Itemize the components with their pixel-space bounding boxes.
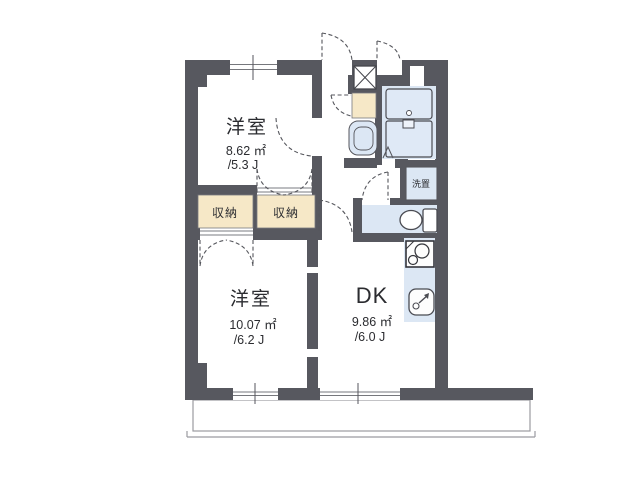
meter-door-arc <box>377 41 400 60</box>
shoe-cabinet <box>352 93 376 118</box>
room-area-bedroom-upper: 8.62 ㎡ <box>226 144 267 158</box>
laundry-label: 洗置 <box>412 178 430 189</box>
shoe-cabinet-door-arc <box>331 95 351 116</box>
window-top <box>230 55 277 80</box>
room-label-dk: DK <box>356 283 389 308</box>
bath-window-notch <box>410 66 424 86</box>
room-size-bedroom-lower: /6.2 J <box>234 333 265 347</box>
room-area-dk: 9.86 ㎡ <box>352 315 393 329</box>
bathtub-icon <box>383 89 432 158</box>
balcony <box>187 400 535 437</box>
closet-right-label: 収納 <box>273 206 299 220</box>
room-size-bedroom-upper: /5.3 J <box>228 158 259 172</box>
stove-icon <box>406 241 434 267</box>
toilet-door-arc <box>362 172 388 200</box>
closet-left-label: 収納 <box>212 206 238 220</box>
room-label-bedroom-lower: 洋室 <box>230 288 272 310</box>
sink-icon <box>409 289 434 315</box>
partition-seam <box>307 267 318 273</box>
closet-left-opening <box>200 228 253 240</box>
meter-box <box>354 66 376 89</box>
room-label-bedroom-upper: 洋室 <box>226 116 268 138</box>
bedroom-upper-door-arc <box>276 118 311 156</box>
room-area-bedroom-lower: 10.07 ㎡ <box>229 318 277 332</box>
closet-right-opening <box>257 185 312 195</box>
entrance-door-arc <box>322 33 352 60</box>
meter-door-opening <box>377 60 402 75</box>
bedroom-door-opening <box>312 118 322 156</box>
partition-seam <box>307 349 318 357</box>
room-size-dk: /6.0 J <box>355 330 386 344</box>
floor-plan-canvas: 洋室 8.62 ㎡ /5.3 J 洋室 10.07 ㎡ /6.2 J DK 9.… <box>0 0 631 480</box>
dk-door-arc <box>319 200 352 232</box>
entrance-opening <box>322 60 352 75</box>
floor-plan: 洋室 8.62 ㎡ /5.3 J 洋室 10.07 ㎡ /6.2 J DK 9.… <box>0 0 631 480</box>
vanity-basin-icon <box>349 121 377 155</box>
